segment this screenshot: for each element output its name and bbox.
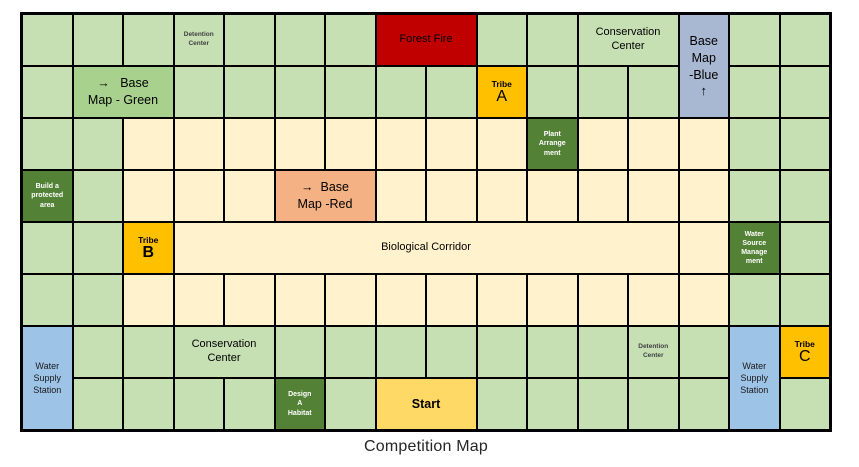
cell-label-line: Center	[629, 352, 678, 361]
map-cell	[275, 274, 326, 326]
map-caption: Competition Map	[20, 438, 832, 456]
map-cell	[174, 274, 225, 326]
cell-conservation-center-bottom: ConservationCenter	[174, 326, 275, 378]
map-cell	[174, 118, 225, 170]
cell-label-line: Center	[175, 352, 274, 366]
cell-label-line: → Base	[74, 75, 173, 92]
map-cell	[325, 378, 376, 430]
map-cell	[376, 326, 427, 378]
map-cell	[527, 66, 578, 118]
map-cell	[679, 378, 730, 430]
map-cell	[224, 274, 275, 326]
map-cell	[527, 378, 578, 430]
cell-plant-arrangement: PlantArrangement	[527, 118, 578, 170]
cell-label-line: ↑	[680, 84, 729, 99]
cell-label-line: Conservation	[175, 338, 274, 352]
cell-label-line: Biological Corridor	[175, 241, 678, 255]
map-cell	[679, 326, 730, 378]
cell-biological-corridor: Biological Corridor	[174, 222, 679, 274]
cell-label-line: Map - Green	[74, 92, 173, 109]
map-cell	[527, 170, 578, 222]
cell-label-line: protected	[23, 191, 72, 200]
cell-label-line: Arrange	[528, 139, 577, 148]
map-cell	[73, 274, 124, 326]
map-cell	[426, 326, 477, 378]
map-cell	[224, 118, 275, 170]
map-cell	[22, 14, 73, 66]
cell-label-line: Design	[276, 390, 325, 399]
map-cell	[628, 66, 679, 118]
map-cell	[578, 170, 629, 222]
cell-design-a-habitat: DesignAHabitat	[275, 378, 326, 430]
cell-label-line: Water	[730, 230, 779, 239]
map-cell	[578, 118, 629, 170]
map-cell	[123, 170, 174, 222]
cell-forest-fire: Forest Fire	[376, 14, 477, 66]
map-cell	[22, 274, 73, 326]
cell-label-line: Map -Red	[276, 196, 375, 213]
cell-label-line: Station	[23, 384, 72, 396]
map-cell	[578, 326, 629, 378]
cell-label-line: -Blue	[680, 67, 729, 84]
map-cell	[224, 170, 275, 222]
map-cell	[477, 170, 528, 222]
cell-label-line: Habitat	[276, 409, 325, 418]
map-cell	[224, 66, 275, 118]
map-cell	[578, 274, 629, 326]
map-cell	[73, 14, 124, 66]
map-cell	[22, 66, 73, 118]
map-cell	[578, 378, 629, 430]
map-cell	[123, 274, 174, 326]
map-cell	[628, 118, 679, 170]
map-cell	[729, 118, 780, 170]
cell-detention-center-top: DetentionCenter	[174, 14, 225, 66]
cell-label-line: Center	[579, 40, 678, 54]
map-cell	[527, 14, 578, 66]
cell-water-supply-station-right: WaterSupplyStation	[729, 326, 780, 430]
map-cell	[376, 118, 427, 170]
map-cell	[780, 222, 831, 274]
cell-label-line: Detention	[629, 343, 678, 352]
map-cell	[527, 326, 578, 378]
cell-label-line: Water	[23, 360, 72, 372]
map-cell	[477, 118, 528, 170]
cell-label-line: → Base	[276, 179, 375, 196]
map-cell	[729, 274, 780, 326]
cell-label-line: ment	[730, 257, 779, 266]
map-cell	[729, 66, 780, 118]
cell-label-line: Base	[680, 33, 729, 50]
map-cell	[477, 378, 528, 430]
map-cell	[325, 14, 376, 66]
map-cell	[679, 118, 730, 170]
cell-label-line: Supply	[730, 372, 779, 384]
map-cell	[679, 274, 730, 326]
map-cell	[376, 66, 427, 118]
map-cell	[73, 170, 124, 222]
map-cell	[123, 378, 174, 430]
cell-label-line: Forest Fire	[377, 33, 476, 47]
cell-tribe-a: TribeA	[477, 66, 528, 118]
cell-label-line: Station	[730, 384, 779, 396]
map-cell	[174, 170, 225, 222]
cell-tribe-c: TribeC	[780, 326, 831, 378]
cell-base-map-red: → BaseMap -Red	[275, 170, 376, 222]
map-cell	[275, 14, 326, 66]
map-cell	[123, 14, 174, 66]
map-cell	[275, 118, 326, 170]
map-cell	[679, 170, 730, 222]
map-cell	[73, 118, 124, 170]
cell-label-line: area	[23, 201, 72, 210]
map-cell	[275, 326, 326, 378]
map-cell	[73, 222, 124, 274]
map-cell	[376, 170, 427, 222]
cell-label-line: Build a	[23, 182, 72, 191]
map-cell	[426, 274, 477, 326]
cell-conservation-center-top: ConservationCenter	[578, 14, 679, 66]
map-cell	[73, 326, 124, 378]
map-cell	[325, 66, 376, 118]
cell-water-supply-station-left: WaterSupplyStation	[22, 326, 73, 430]
cell-label-line: B	[124, 245, 173, 262]
map-cell	[729, 14, 780, 66]
cell-build-protected-area: Build aprotectedarea	[22, 170, 73, 222]
map-cell	[325, 118, 376, 170]
cell-label-line: Manage	[730, 248, 779, 257]
cell-label-line: Water	[730, 360, 779, 372]
cell-start: Start	[376, 378, 477, 430]
cell-label-line: Map	[680, 50, 729, 67]
map-cell	[22, 118, 73, 170]
cell-label-line: ment	[528, 149, 577, 158]
map-cell	[477, 326, 528, 378]
map-cell	[174, 66, 225, 118]
map-cell	[123, 326, 174, 378]
map-cell	[578, 66, 629, 118]
competition-map-figure: DetentionCenterForest FireConservationCe…	[20, 12, 832, 456]
cell-label-line: Center	[175, 40, 224, 49]
map-cell	[679, 222, 730, 274]
cell-label-line: Source	[730, 239, 779, 248]
map-cell	[325, 274, 376, 326]
cell-label-line: A	[276, 399, 325, 408]
cell-label-line: C	[781, 349, 830, 366]
map-cell	[780, 170, 831, 222]
map-cell	[426, 118, 477, 170]
map-cell	[224, 14, 275, 66]
map-cell	[628, 274, 679, 326]
cell-label-line: Detention	[175, 31, 224, 40]
map-cell	[780, 14, 831, 66]
map-cell	[780, 378, 831, 430]
map-cell	[376, 274, 427, 326]
map-cell	[477, 274, 528, 326]
map-cell	[729, 170, 780, 222]
map-cell	[628, 378, 679, 430]
cell-label-line: Plant	[528, 130, 577, 139]
cell-label-line: Start	[377, 397, 476, 411]
cell-label-line: Supply	[23, 372, 72, 384]
cell-detention-center-bottom: DetentionCenter	[628, 326, 679, 378]
cell-base-map-green: → BaseMap - Green	[73, 66, 174, 118]
cell-tribe-b: TribeB	[123, 222, 174, 274]
map-cell	[780, 66, 831, 118]
map-cell	[325, 326, 376, 378]
map-cell	[73, 378, 124, 430]
map-cell	[426, 170, 477, 222]
map-cell	[780, 274, 831, 326]
map-cell	[174, 378, 225, 430]
map-cell	[477, 14, 528, 66]
map-cell	[780, 118, 831, 170]
cell-label-line: Conservation	[579, 26, 678, 40]
cell-water-source-management: WaterSourceManagement	[729, 222, 780, 274]
competition-grid: DetentionCenterForest FireConservationCe…	[20, 12, 832, 432]
map-cell	[275, 66, 326, 118]
map-cell	[628, 170, 679, 222]
cell-base-map-blue: BaseMap-Blue↑	[679, 14, 730, 118]
cell-label-line: A	[478, 89, 527, 106]
map-cell	[426, 66, 477, 118]
map-cell	[527, 274, 578, 326]
map-cell	[22, 222, 73, 274]
map-cell	[123, 118, 174, 170]
map-cell	[224, 378, 275, 430]
